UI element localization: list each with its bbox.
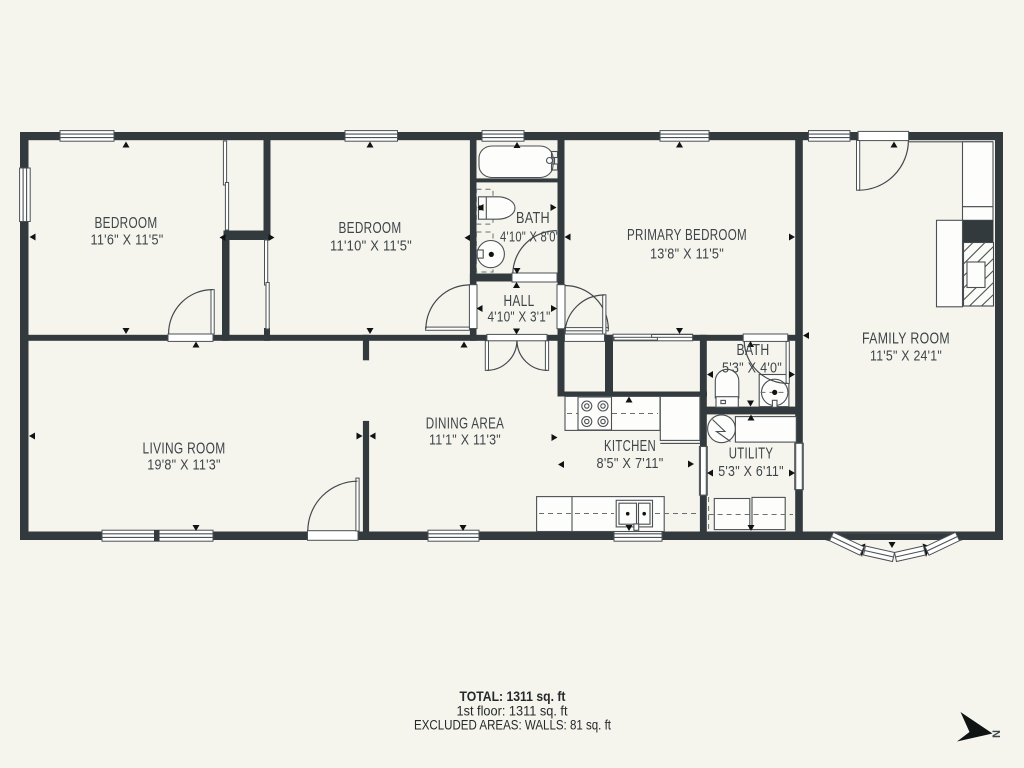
svg-text:1st floor: 1311 sq. ft: 1st floor: 1311 sq. ft <box>457 703 568 718</box>
svg-text:11'10" X 11'5": 11'10" X 11'5" <box>330 239 412 255</box>
svg-text:5'3" X 4'0": 5'3" X 4'0" <box>722 361 782 377</box>
svg-text:13'8" X 11'5": 13'8" X 11'5" <box>650 247 724 263</box>
svg-text:KITCHEN: KITCHEN <box>604 438 656 455</box>
svg-text:BEDROOM: BEDROOM <box>339 220 402 237</box>
svg-text:N: N <box>990 730 1002 738</box>
svg-text:DINING AREA: DINING AREA <box>426 416 505 433</box>
svg-text:19'8" X 11'3": 19'8" X 11'3" <box>147 458 221 474</box>
svg-text:TOTAL: 1311 sq. ft: TOTAL: 1311 sq. ft <box>460 689 566 704</box>
svg-text:HALL: HALL <box>504 293 535 310</box>
svg-text:UTILITY: UTILITY <box>729 446 774 463</box>
svg-text:PRIMARY BEDROOM: PRIMARY BEDROOM <box>627 227 747 244</box>
svg-text:LIVING ROOM: LIVING ROOM <box>143 441 226 458</box>
svg-text:11'5" X 24'1": 11'5" X 24'1" <box>870 349 942 365</box>
svg-text:BEDROOM: BEDROOM <box>95 215 158 232</box>
svg-text:BATH: BATH <box>516 210 550 227</box>
svg-text:BATH: BATH <box>737 342 770 359</box>
svg-text:EXCLUDED AREAS: WALLS: 81 sq.: EXCLUDED AREAS: WALLS: 81 sq. ft <box>414 718 611 733</box>
svg-text:8'5" X 7'11": 8'5" X 7'11" <box>597 456 664 472</box>
svg-text:5'3" X 6'11": 5'3" X 6'11" <box>718 464 784 480</box>
svg-text:FAMILY ROOM: FAMILY ROOM <box>862 331 950 348</box>
svg-text:4'10" X 8'0": 4'10" X 8'0" <box>500 230 560 246</box>
svg-text:11'1" X 11'3": 11'1" X 11'3" <box>429 433 501 449</box>
svg-text:11'6" X 11'5": 11'6" X 11'5" <box>91 233 164 249</box>
svg-text:4'10" X 3'1": 4'10" X 3'1" <box>488 310 551 326</box>
